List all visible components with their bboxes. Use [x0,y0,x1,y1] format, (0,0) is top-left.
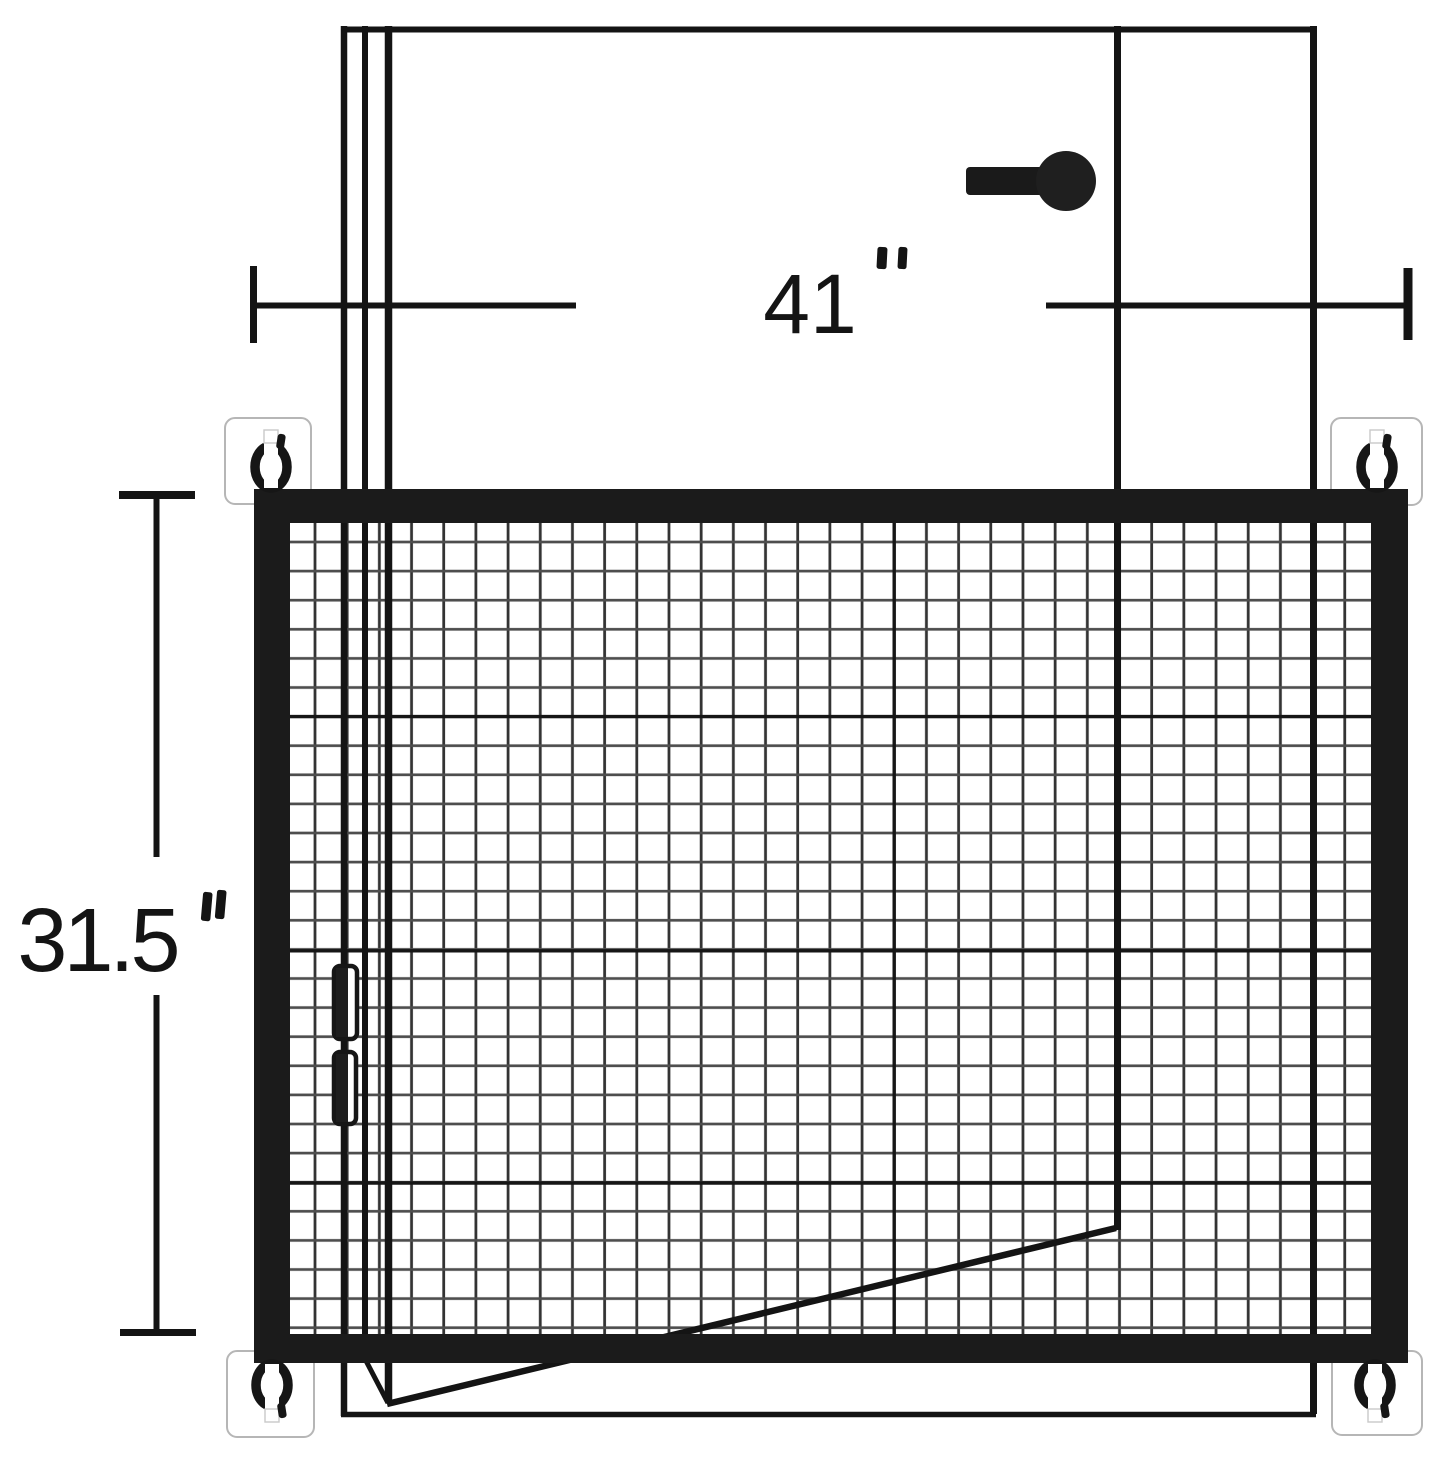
svg-text:31.5: 31.5 [17,891,177,991]
svg-text:41: 41 [763,257,856,351]
